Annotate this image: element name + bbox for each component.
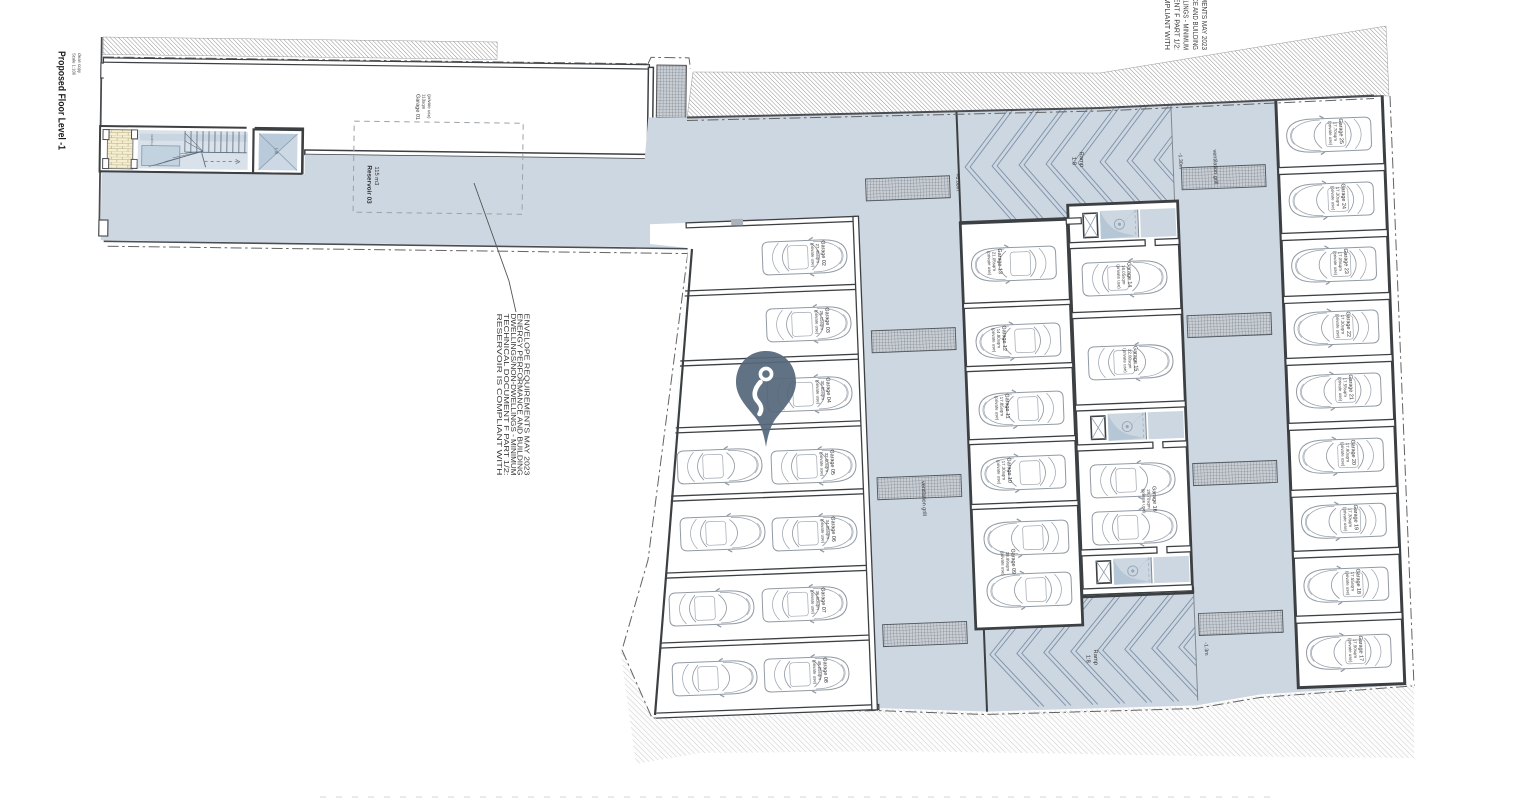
svg-text:(private use): (private use)	[1345, 571, 1351, 596]
svg-text:Proposed Floor Level -1: Proposed Floor Level -1	[56, 51, 67, 150]
svg-text:(private use): (private use)	[1342, 507, 1348, 532]
svg-text:(private use): (private use)	[994, 396, 1000, 421]
svg-text:(private use): (private use)	[1340, 442, 1346, 467]
svg-text:-1.3m: -1.3m	[1203, 642, 1210, 655]
svg-text:TECHNICAL DOCUMENT F PART 1/2:: TECHNICAL DOCUMENT F PART 1/2:	[502, 314, 510, 476]
svg-text:(private use): (private use)	[1328, 121, 1334, 146]
svg-text:clean copy: clean copy	[77, 53, 82, 74]
svg-text:DWELLINGS/NON-DWELLINGS - MINI: DWELLINGS/NON-DWELLINGS - MINIMUM	[509, 314, 517, 476]
svg-text:Garage 01: Garage 01	[414, 94, 420, 120]
svg-text:(private use): (private use)	[1333, 251, 1339, 276]
svg-text:115 m3: 115 m3	[373, 166, 379, 185]
svg-text:Ramp: Ramp	[1092, 649, 1099, 665]
svg-text:DWELLINGS/NON-DWELLINGS - MINI: DWELLINGS/NON-DWELLINGS - MINIMUM	[1182, 0, 1190, 50]
svg-text:(private use): (private use)	[1000, 551, 1006, 576]
svg-text:+0.00m: +0.00m	[954, 173, 961, 191]
svg-text:(private use): (private use)	[1122, 348, 1128, 373]
svg-text:TECHNICAL DOCUMENT F PART 1/2:: TECHNICAL DOCUMENT F PART 1/2:	[1172, 0, 1180, 50]
svg-text:(private use): (private use)	[815, 380, 821, 405]
svg-text:(private use): (private use)	[820, 519, 826, 544]
svg-text:Reservoir 03: Reservoir 03	[365, 165, 372, 204]
svg-text:(private use): (private use)	[1330, 186, 1336, 211]
svg-text:(private use): (private use)	[810, 243, 816, 268]
svg-text:(private use): (private use)	[819, 452, 825, 477]
svg-text:113sqm: 113sqm	[421, 94, 426, 110]
svg-text:Scale 1:100: Scale 1:100	[72, 53, 77, 76]
svg-text:(private use): (private use)	[986, 251, 992, 276]
svg-text:RESERVOIR IS COMPLIANT WITH: RESERVOIR IS COMPLIANT WITH	[495, 314, 503, 476]
svg-text:(private use): (private use)	[814, 310, 820, 335]
svg-text:1:8: 1:8	[1084, 655, 1090, 663]
svg-text:RESERVOIR IS COMPLIANT WITH: RESERVOIR IS COMPLIANT WITH	[1163, 0, 1171, 50]
svg-text:(private use): (private use)	[1347, 638, 1353, 663]
svg-text:(private use): (private use)	[1116, 264, 1122, 289]
svg-text:-1.30m: -1.30m	[1177, 153, 1184, 169]
svg-text:(private use): (private use)	[1141, 488, 1147, 513]
svg-text:(private use): (private use)	[810, 590, 816, 615]
svg-text:(private use): (private use)	[1337, 377, 1343, 402]
svg-text:(private use): (private use)	[991, 328, 997, 353]
svg-text:Lift: Lift	[274, 148, 279, 155]
svg-text:ENERGY PERFORMANCE AND BUILDIN: ENERGY PERFORMANCE AND BUILDING	[1191, 0, 1199, 50]
svg-text:ENVELOPE REQUIREMENTS MAY 2023: ENVELOPE REQUIREMENTS MAY 2023	[1200, 0, 1208, 50]
svg-text:1:8: 1:8	[1070, 157, 1076, 165]
svg-text:ENERGY PERFORMANCE AND BUILDIN: ENERGY PERFORMANCE AND BUILDING	[516, 314, 524, 476]
svg-text:(private use): (private use)	[1335, 314, 1341, 339]
svg-text:ENVELOPE REQUIREMENTS MAY 2023: ENVELOPE REQUIREMENTS MAY 2023	[523, 314, 531, 476]
svg-text:(private use): (private use)	[996, 460, 1002, 485]
svg-text:(private use): (private use)	[812, 660, 818, 685]
svg-text:(private use): (private use)	[427, 94, 432, 119]
svg-text:Ramp: Ramp	[1078, 152, 1085, 168]
